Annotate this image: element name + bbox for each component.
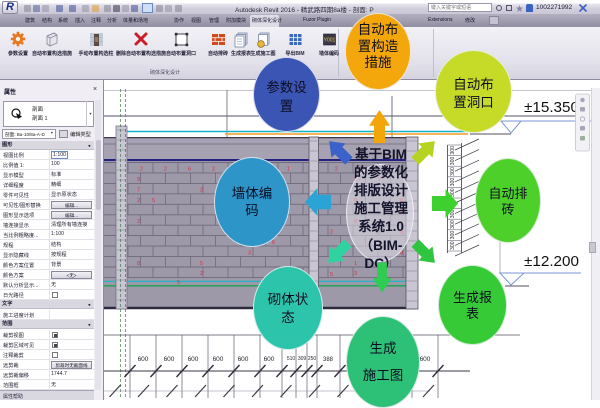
svg-text:1: 1 bbox=[287, 167, 290, 173]
svg-text:9: 9 bbox=[137, 177, 140, 183]
svg-text:600: 600 bbox=[188, 356, 199, 363]
svg-text:600: 600 bbox=[213, 356, 224, 363]
svg-text:2: 2 bbox=[200, 271, 203, 277]
svg-text:5: 5 bbox=[177, 280, 180, 286]
svg-text:2: 2 bbox=[137, 219, 140, 225]
svg-text:300: 300 bbox=[450, 167, 456, 176]
svg-text:510: 510 bbox=[287, 356, 296, 362]
svg-text:600: 600 bbox=[164, 356, 175, 363]
svg-text:2: 2 bbox=[140, 167, 143, 173]
svg-text:3: 3 bbox=[248, 250, 251, 256]
svg-text:5: 5 bbox=[200, 261, 203, 267]
svg-text:6: 6 bbox=[272, 240, 275, 246]
svg-text:±12.200: ±12.200 bbox=[524, 254, 579, 270]
svg-text:2: 2 bbox=[137, 198, 140, 204]
svg-text:600: 600 bbox=[138, 356, 149, 363]
svg-text:250: 250 bbox=[308, 356, 317, 362]
svg-text:600: 600 bbox=[238, 356, 249, 363]
svg-text:8: 8 bbox=[137, 261, 140, 267]
svg-text:300: 300 bbox=[450, 156, 456, 165]
svg-text:300: 300 bbox=[450, 146, 456, 155]
svg-text:6: 6 bbox=[188, 167, 191, 173]
svg-text:2: 2 bbox=[212, 167, 215, 173]
svg-text:600: 600 bbox=[264, 356, 275, 363]
svg-text:300: 300 bbox=[450, 220, 456, 229]
svg-text:300: 300 bbox=[450, 231, 456, 240]
svg-text:5: 5 bbox=[152, 198, 155, 204]
svg-text:7: 7 bbox=[137, 188, 140, 194]
svg-text:2: 2 bbox=[164, 167, 167, 173]
svg-text:309: 309 bbox=[298, 356, 307, 362]
svg-text:300: 300 bbox=[450, 241, 456, 250]
